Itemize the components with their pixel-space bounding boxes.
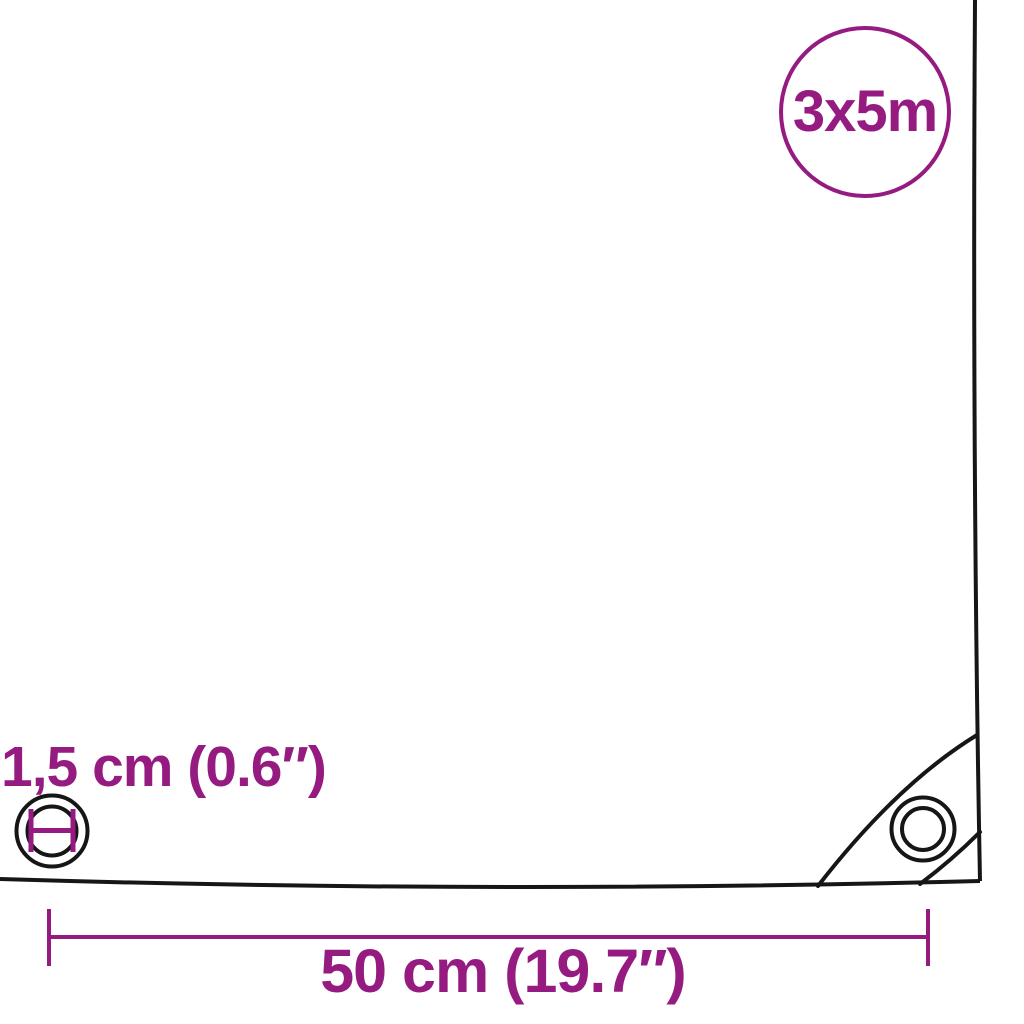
tarpaulin-dimension-diagram: 3x5m 1,5 cm (0.6″) 50 cm (19.7″) <box>0 0 1024 1024</box>
corner-grommet-icon-inner <box>902 808 944 850</box>
tarp-right-edge <box>974 0 980 881</box>
size-badge: 3x5m <box>781 28 949 196</box>
tarp-bottom-edge <box>0 879 980 887</box>
eyelet-size-label: 1,5 cm (0.6″) <box>1 739 326 796</box>
size-badge-label: 3x5m <box>793 83 937 141</box>
eyelet-spacing-label: 50 cm (19.7″) <box>320 941 685 1002</box>
